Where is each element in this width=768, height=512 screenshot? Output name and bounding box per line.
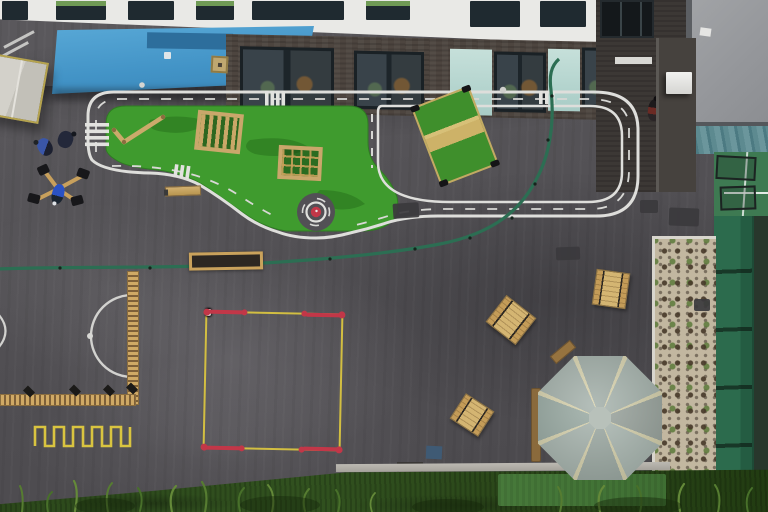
drain-cap	[139, 82, 145, 88]
trim-trail-beam-horizontal	[0, 394, 136, 406]
grid-corner-dot	[201, 443, 208, 450]
number-grid-marking: 1 2 3 4 5 6 7 8 9	[203, 311, 344, 452]
ladder-bridge	[194, 110, 244, 155]
drain-cap	[500, 87, 506, 93]
tarmac-patch	[556, 247, 580, 261]
grid-corner-dot	[335, 446, 342, 453]
blue-tile-patch	[426, 446, 443, 460]
tarmac-patch	[393, 202, 420, 219]
grid-corner-dot	[203, 309, 210, 316]
wing-window	[600, 0, 654, 38]
tarmac-patch	[694, 299, 710, 311]
grid-corner-dot	[338, 311, 345, 318]
wing-inner-wall	[656, 38, 696, 192]
circle-spot	[87, 333, 93, 339]
grid-edge-dot	[239, 445, 245, 451]
wooden-planter	[189, 251, 263, 270]
window-mullion	[640, 2, 642, 36]
grid-red-corner	[205, 310, 243, 315]
ac-unit	[666, 72, 692, 94]
gazebo-roof-hub	[589, 407, 611, 429]
zigzag-marking	[35, 427, 130, 446]
wooden-bench	[165, 185, 201, 196]
grid-edge-dot	[299, 447, 305, 453]
picnic-table	[592, 269, 631, 309]
climbing-net-frame	[277, 145, 323, 181]
shelter-ridge	[11, 60, 23, 117]
semicircle-marking	[91, 295, 132, 377]
mini-roundabout	[297, 193, 335, 231]
track-inner-line-right	[378, 106, 622, 202]
tarmac-patch	[640, 200, 658, 213]
foreground-weeds	[0, 460, 768, 512]
wall-ledge	[615, 57, 652, 64]
edge-arc-marking	[0, 315, 6, 347]
playground-aerial-photo: 1 2 3 4 5 6 7 8 9	[0, 0, 768, 512]
zebra-crossing-mid	[173, 164, 190, 179]
grid-red-corner	[203, 446, 241, 451]
grid-edge-dot	[301, 311, 307, 317]
bench-leg	[164, 190, 168, 196]
grid-edge-dot	[241, 309, 247, 315]
window-mullion	[620, 2, 622, 36]
tarmac-patch	[669, 207, 700, 226]
wheel	[410, 104, 421, 113]
box-handle	[218, 63, 222, 67]
wheel	[461, 84, 472, 93]
storage-box	[211, 56, 229, 74]
